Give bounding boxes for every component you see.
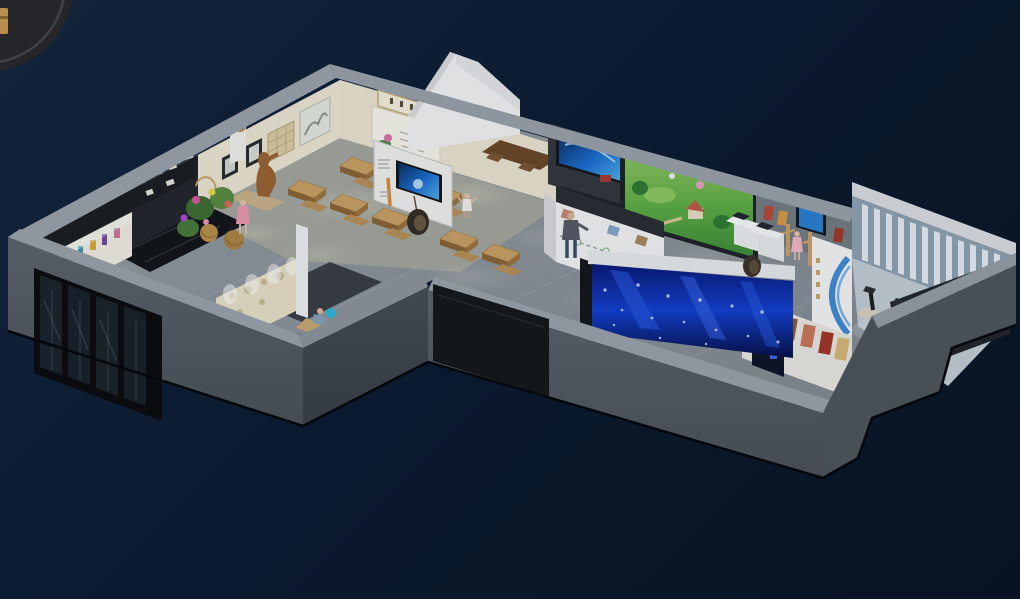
exhibition-hall-render: [0, 0, 1020, 599]
vignette-overlay: [0, 0, 1020, 599]
render-canvas: 3D isometric cutaway rendering of a muse…: [0, 0, 1020, 599]
